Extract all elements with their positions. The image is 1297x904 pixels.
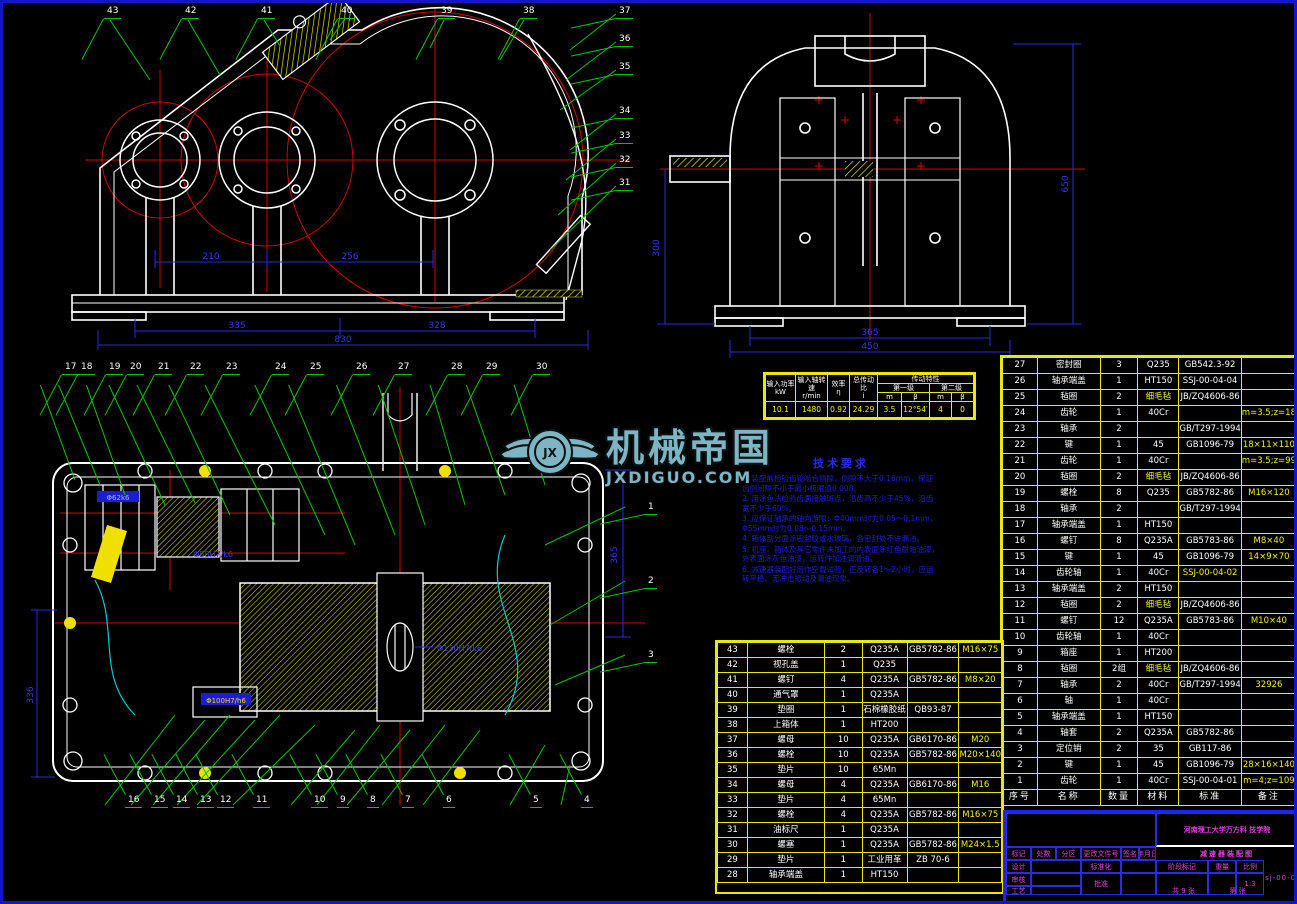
spec-value: 12°54′	[902, 402, 930, 418]
check-sign-cell	[1031, 873, 1081, 886]
bom-cell: 2	[1100, 502, 1138, 518]
bom-cell: 18	[1003, 502, 1038, 518]
bom-row: 18轴承2GB/T297-1994	[1003, 502, 1297, 518]
label-design: 设计	[1006, 860, 1031, 873]
bom-cell	[959, 763, 1002, 778]
transmission-spec-table: 输入功率 kW 输入轴转速 r/min 效率 η 总传动比 i 传动特性 第一级…	[763, 372, 976, 420]
label-date: 年月日	[1139, 847, 1156, 860]
bom-row: 10齿轮轴140Cr	[1003, 630, 1297, 646]
bom-cell: 垫片	[747, 793, 824, 808]
svg-text:335: 335	[228, 321, 245, 331]
bom-cell: 1	[1100, 646, 1138, 662]
bom-row: 42视孔盖1Q235	[718, 658, 1002, 673]
technical-requirements-list: 1. 装配前检验齿轮啮合侧隙，侧隙不大于0.16mm，保证齿侧间隙不小于最小极限…	[742, 474, 940, 584]
bom-cell	[1241, 358, 1296, 374]
spec-header: 总传动比 i	[850, 375, 878, 402]
bom-cell: 轴承	[1037, 422, 1100, 438]
side-view: 365 450 300 650	[645, 8, 1095, 358]
part-balloon-8: 8	[367, 795, 379, 808]
bom-cell: 轴承端盖	[1037, 374, 1100, 390]
bom-cell: 1	[825, 718, 863, 733]
part-balloon-14: 14	[173, 795, 190, 808]
part-balloon-26: 26	[353, 362, 370, 375]
bom-cell	[907, 793, 959, 808]
bom-row: 11螺钉12Q235AGB5783-86M10×40	[1003, 614, 1297, 630]
part-balloon-label: 33	[616, 131, 633, 144]
bom-cell	[959, 718, 1002, 733]
part-balloon-6: 6	[443, 795, 455, 808]
bom-cell: 16	[1003, 534, 1038, 550]
bom-cell: 轴	[1037, 694, 1100, 710]
bom-cell: 4	[1003, 726, 1038, 742]
bom-cell	[1179, 694, 1241, 710]
part-balloon-24: 24	[272, 362, 289, 375]
bom-cell: JB/ZQ4606-86	[1179, 470, 1241, 486]
spec-subcol: m	[878, 393, 902, 402]
part-balloon-label: 35	[616, 62, 633, 75]
part-balloon-label: 2	[645, 576, 657, 589]
part-balloon-27: 27	[395, 362, 412, 375]
bom-table-right: 27密封圈3Q235GB542.3-9226轴承端盖1HT150SSJ-00-0…	[1000, 355, 1297, 819]
bom-cell: 9	[1003, 646, 1038, 662]
bom-cell: 螺钉	[1037, 534, 1100, 550]
svg-text:365: 365	[610, 546, 620, 563]
spec-header: 效率 η	[828, 375, 850, 402]
bom-cell: 28×16×140	[1241, 758, 1296, 774]
bom-cell: 2	[1100, 390, 1138, 406]
bom-cell	[907, 658, 959, 673]
bom-cell: 43	[718, 643, 748, 658]
bom-cell: GB5782-86	[907, 838, 959, 853]
spec-group-header: 传动特性	[878, 375, 974, 384]
bom-cell: 40Cr	[1138, 406, 1179, 422]
bom-cell: 39	[718, 703, 748, 718]
label-approve: 批准	[1081, 873, 1121, 895]
part-balloon-label: 18	[78, 362, 95, 375]
bom-cell: Q235	[862, 658, 907, 673]
bom-cell: 1	[825, 853, 863, 868]
bom-cell: JB/ZQ4606-86	[1179, 662, 1241, 678]
bom-cell	[1179, 406, 1241, 422]
bom-row: 13轴承端盖2HT150	[1003, 582, 1297, 598]
bom-cell: 32926	[1241, 678, 1296, 694]
part-balloon-label: 23	[223, 362, 240, 375]
part-balloon-13: 13	[197, 795, 214, 808]
part-balloon-label: 28	[448, 362, 465, 375]
bom-cell: GB6170-86	[907, 733, 959, 748]
svg-text:Φ58H7/k6: Φ58H7/k6	[193, 550, 233, 559]
bom-cell: GB5782-86	[907, 643, 959, 658]
approve-sign-cell	[1121, 873, 1156, 895]
bom-row: 19螺栓8Q235GB5782-86M16×120	[1003, 486, 1297, 502]
gasket-highlight	[516, 290, 582, 297]
bom-cell: 细毛毡	[1138, 390, 1179, 406]
bom-cell: JB/ZQ4606-86	[1179, 598, 1241, 614]
process-sign-cell	[1031, 886, 1081, 895]
bom-cell: 上箱体	[747, 718, 824, 733]
bom-header-cell: 备注	[1241, 790, 1296, 806]
bom-row: 17轴承端盖1HT150	[1003, 518, 1297, 534]
bom-cell: 螺母	[747, 733, 824, 748]
bom-cell: HT150	[1138, 374, 1179, 390]
bom-cell	[1179, 454, 1241, 470]
part-balloon-label: 40	[338, 6, 355, 19]
bom-cell	[907, 763, 959, 778]
bom-cell: ZB 70-6	[907, 853, 959, 868]
label-standard: 标准化	[1081, 860, 1121, 873]
bom-cell: 轴承端盖	[1037, 582, 1100, 598]
bom-cell	[907, 823, 959, 838]
bom-cell: Q235A	[862, 643, 907, 658]
bom-cell: Q235A	[862, 673, 907, 688]
bom-cell: M16×75	[959, 643, 1002, 658]
bom-cell: 1	[825, 823, 863, 838]
technical-note: 6. 减速器装配好后作空载试验，正反转各1～2小时，应运转平稳、无冲击振动及漏油…	[742, 565, 940, 584]
bom-row: 4轴套2Q235AGB5782-86	[1003, 726, 1297, 742]
bom-row: 38上箱体1HT200	[718, 718, 1002, 733]
bom-cell: 1	[1003, 774, 1038, 790]
drawing-title: 减速器装配图	[1156, 847, 1297, 860]
bom-cell: GB5782-86	[907, 673, 959, 688]
bom-cell: GB5783-86	[1179, 534, 1241, 550]
part-balloon-label: 8	[367, 795, 379, 808]
label-ratio: 比例	[1236, 860, 1264, 873]
part-balloon-label: 37	[616, 6, 633, 19]
bom-cell: 轴承端盖	[1037, 518, 1100, 534]
part-balloon-21: 21	[155, 362, 172, 375]
bom-cell	[959, 688, 1002, 703]
bom-cell: GB5783-86	[1179, 614, 1241, 630]
label-check: 审核	[1006, 873, 1031, 886]
bom-cell: GB/T297-1994	[1179, 678, 1241, 694]
bom-row: 39垫圈1石棉橡胶纸QB93-87	[718, 703, 1002, 718]
part-balloon-label: 11	[253, 795, 270, 808]
bom-cell: 35	[718, 763, 748, 778]
label-count: 处数	[1031, 847, 1056, 860]
technical-note: 5. 机座、箱体及其它零件未加工的内表面涂红色耐油油漆，外表面涂灰色油漆，运转件…	[742, 545, 940, 564]
svg-text:JX: JX	[542, 446, 557, 460]
bom-cell: 1	[1100, 630, 1138, 646]
bom-cell: m=3.5;z=18	[1241, 406, 1296, 422]
bom-cell: 3	[1100, 358, 1138, 374]
label-mark: 标记	[1006, 847, 1031, 860]
bom-cell: 1	[1100, 774, 1138, 790]
bom-cell	[959, 853, 1002, 868]
bom-cell: GB1096-79	[1179, 758, 1241, 774]
spec-stage2: 第二级	[930, 384, 974, 393]
bom-header-cell: 名称	[1037, 790, 1100, 806]
part-balloon-label: 42	[182, 6, 199, 19]
bom-cell: 34	[718, 778, 748, 793]
bom-cell: 4	[825, 673, 863, 688]
label-doc: 更改文件号	[1081, 847, 1121, 860]
spec-value: 3.5	[878, 402, 902, 418]
bom-cell: SSJ-00-04-04	[1179, 374, 1241, 390]
bom-row: 36螺栓10Q235AGB5782-86M20×140	[718, 748, 1002, 763]
bom-row: 6轴140Cr	[1003, 694, 1297, 710]
part-balloon-42: 42	[182, 6, 199, 19]
bom-cell: 螺栓	[747, 748, 824, 763]
bom-cell: Q235A	[1138, 726, 1179, 742]
bom-row: 21齿轮140Crm=3.5;z=99	[1003, 454, 1297, 470]
spec-value: 0.92	[828, 402, 850, 418]
bom-cell: 26	[1003, 374, 1038, 390]
part-balloon-label: 25	[307, 362, 324, 375]
bom-cell: M16	[959, 778, 1002, 793]
bom-cell: 2	[1100, 678, 1138, 694]
bom-cell: 4	[825, 793, 863, 808]
bom-cell: 15	[1003, 550, 1038, 566]
bom-cell: 螺钉	[1037, 614, 1100, 630]
bom-cell: 2	[1100, 598, 1138, 614]
bom-cell: 3	[1003, 742, 1038, 758]
bom-cell: 1	[1100, 694, 1138, 710]
bom-cell	[1241, 598, 1296, 614]
bom-cell: 36	[718, 748, 748, 763]
dimension-lines	[657, 44, 1081, 358]
bom-cell: 垫片	[747, 853, 824, 868]
bom-cell: 14×9×70	[1241, 550, 1296, 566]
bom-cell: 1	[1100, 710, 1138, 726]
bom-cell: GB5782-86	[907, 748, 959, 763]
bom-cell: 1	[1100, 758, 1138, 774]
part-balloon-43: 43	[104, 6, 121, 19]
bom-cell: 8	[1100, 486, 1138, 502]
part-balloon-label: 29	[483, 362, 500, 375]
bom-cell: 2	[1100, 742, 1138, 758]
bom-cell: M16×75	[959, 808, 1002, 823]
bom-cell: GB/T297-1994	[1179, 502, 1241, 518]
part-balloon-16: 16	[125, 795, 142, 808]
svg-text:Φ130H7/k6: Φ130H7/k6	[437, 644, 482, 653]
label-process: 工艺	[1006, 886, 1031, 895]
part-balloon-31: 31	[616, 178, 633, 191]
bom-cell: 轴承	[1037, 678, 1100, 694]
bom-cell: 45	[1138, 438, 1179, 454]
bom-cell	[1241, 470, 1296, 486]
bom-cell	[1179, 710, 1241, 726]
part-balloon-label: 12	[217, 795, 234, 808]
bom-cell: 1	[825, 838, 863, 853]
bom-cell: 1	[1100, 454, 1138, 470]
bom-cell: GB5782-86	[1179, 486, 1241, 502]
bom-cell: 键	[1037, 758, 1100, 774]
bom-cell: 1	[825, 703, 863, 718]
bom-cell	[1241, 646, 1296, 662]
bom-cell: 28	[718, 868, 748, 883]
bom-row: 3定位销235GB117-86	[1003, 742, 1297, 758]
bom-cell	[1138, 422, 1179, 438]
bom-cell	[1138, 502, 1179, 518]
bom-cell: 齿轮轴	[1037, 566, 1100, 582]
bom-cell: M8×20	[959, 673, 1002, 688]
bom-cell: 40	[718, 688, 748, 703]
part-balloon-34: 34	[616, 106, 633, 119]
bom-cell: 键	[1037, 550, 1100, 566]
bom-cell: GB1096-79	[1179, 550, 1241, 566]
bom-row: 1齿轮140CrSSJ-00-04-01m=4;z=109	[1003, 774, 1297, 790]
bom-cell: HT150	[1138, 518, 1179, 534]
svg-text:210: 210	[202, 252, 219, 262]
bom-cell: HT150	[1138, 710, 1179, 726]
technical-note: 2. 用涂色法检验齿面接触斑点，沿齿高不少于45%，沿齿宽不少于60%。	[742, 494, 940, 513]
technical-note: 3. 应保证轴承的轴向游隙：Φ40mm时为0.05～0.1mm，Φ55mm时为0…	[742, 514, 940, 533]
bom-cell: HT150	[862, 868, 907, 883]
bom-cell	[1179, 646, 1241, 662]
title-block: 标记 处数 分区 更改文件号 签名 年月日 设计 标准化 审核 工艺 批准 阶段…	[1003, 810, 1297, 904]
part-balloon-label: 39	[438, 6, 455, 19]
bom-cell: 40Cr	[1138, 774, 1179, 790]
part-balloon-5: 5	[530, 795, 542, 808]
bom-row: 22键145GB1096-7918×11×110	[1003, 438, 1297, 454]
part-balloon-label: 26	[353, 362, 370, 375]
bom-cell: 螺栓	[747, 643, 824, 658]
watermark-en-text: JXDIGUO.COM	[606, 468, 774, 487]
svg-text:300: 300	[652, 239, 662, 256]
label-sheet: 第 张	[1211, 886, 1264, 895]
spec-header: 输入功率 kW	[766, 375, 796, 402]
bom-cell	[1179, 518, 1241, 534]
bom-cell: 4	[825, 778, 863, 793]
bom-cell: 2	[1100, 582, 1138, 598]
winged-gear-logo-icon: JX	[498, 416, 602, 488]
bom-cell: M24×1.5	[959, 838, 1002, 853]
part-balloon-label: 6	[443, 795, 455, 808]
bom-cell: HT200	[862, 718, 907, 733]
part-balloon-12: 12	[217, 795, 234, 808]
bom-cell: 视孔盖	[747, 658, 824, 673]
bom-cell: 18×11×110	[1241, 438, 1296, 454]
bom-cell	[1241, 630, 1296, 646]
bom-cell: 1	[1100, 550, 1138, 566]
bom-cell: Q235A	[862, 808, 907, 823]
bom-cell: M8×40	[1241, 534, 1296, 550]
bom-row: 23轴承2GB/T297-1994	[1003, 422, 1297, 438]
part-balloon-label: 31	[616, 178, 633, 191]
bom-cell: Q235	[1138, 486, 1179, 502]
part-balloon-label: 20	[127, 362, 144, 375]
bom-cell: 密封圈	[1037, 358, 1100, 374]
bom-cell	[1241, 710, 1296, 726]
bom-cell: M20	[959, 733, 1002, 748]
bom-cell: 轴套	[1037, 726, 1100, 742]
bom-cell: 齿轮	[1037, 774, 1100, 790]
bom-cell: M16×120	[1241, 486, 1296, 502]
bom-cell: 螺塞	[747, 838, 824, 853]
bom-row: 40通气罩1Q235A	[718, 688, 1002, 703]
drawing-number-box: ssj-00-04	[1264, 860, 1297, 895]
bom-cell: 21	[1003, 454, 1038, 470]
bom-cell: 1	[1100, 406, 1138, 422]
bom-cell: 螺母	[747, 778, 824, 793]
bom-cell: GB117-86	[1179, 742, 1241, 758]
bom-cell	[959, 823, 1002, 838]
bom-cell	[907, 718, 959, 733]
part-balloon-32: 32	[616, 155, 633, 168]
bom-cell: 石棉橡胶纸	[862, 703, 907, 718]
part-balloon-33: 33	[616, 131, 633, 144]
bom-cell: 齿轮轴	[1037, 630, 1100, 646]
bom-cell: GB5782-86	[1179, 726, 1241, 742]
bom-cell	[1179, 582, 1241, 598]
bom-cell: JB/ZQ4606-86	[1179, 390, 1241, 406]
part-balloon-label: 13	[197, 795, 214, 808]
bom-header-cell: 标准	[1179, 790, 1241, 806]
bom-cell: 1	[1100, 518, 1138, 534]
bom-row: 43螺栓2Q235AGB5782-86M16×75	[718, 643, 1002, 658]
bom-cell: 1	[825, 868, 863, 883]
bom-cell: 7	[1003, 678, 1038, 694]
bom-cell	[1241, 726, 1296, 742]
bom-cell: Q235A	[862, 688, 907, 703]
bom-cell: 垫片	[747, 763, 824, 778]
bom-cell: 6	[1003, 694, 1038, 710]
bom-cell: 29	[718, 853, 748, 868]
bom-row: 2键145GB1096-7928×16×140	[1003, 758, 1297, 774]
part-balloon-label: 30	[533, 362, 550, 375]
bom-row: 33垫片465Mn	[718, 793, 1002, 808]
spec-subcol: β	[902, 393, 930, 402]
part-balloon-label: 7	[402, 795, 414, 808]
bom-cell: 10	[825, 763, 863, 778]
bom-cell: 2	[1100, 422, 1138, 438]
part-balloon-label: 22	[187, 362, 204, 375]
bom-cell: 17	[1003, 518, 1038, 534]
svg-text:Φ62k6: Φ62k6	[107, 494, 130, 502]
bom-cell: 2	[1100, 470, 1138, 486]
bom-cell: 12	[1100, 614, 1138, 630]
bom-row: 16螺钉8Q235AGB5783-86M8×40	[1003, 534, 1297, 550]
bom-cell: Q235A	[862, 748, 907, 763]
svg-text:365: 365	[861, 328, 878, 338]
bom-cell: 33	[718, 793, 748, 808]
bom-cell: 毡圈	[1037, 662, 1100, 678]
label-stage: 阶段标记	[1156, 860, 1208, 873]
bom-cell: 13	[1003, 582, 1038, 598]
bom-header-cell: 数量	[1100, 790, 1138, 806]
part-balloon-10: 10	[311, 795, 328, 808]
label-sign: 签名	[1121, 847, 1139, 860]
bom-cell: 40Cr	[1138, 454, 1179, 470]
bom-cell: 油标尺	[747, 823, 824, 838]
part-balloon-11: 11	[253, 795, 270, 808]
part-balloon-label: 1	[645, 502, 657, 515]
school-name: 河南理工大学万方科 技学院	[1156, 813, 1297, 847]
bom-cell: GB6170-86	[907, 778, 959, 793]
bom-cell: 2	[825, 643, 863, 658]
bom-cell	[1241, 742, 1296, 758]
bom-cell: 箱座	[1037, 646, 1100, 662]
bom-row: 35垫片1065Mn	[718, 763, 1002, 778]
bom-cell: 螺栓	[747, 808, 824, 823]
bom-cell: 1	[825, 658, 863, 673]
bom-cell: 40Cr	[1138, 630, 1179, 646]
label-sheets: 共 9 张	[1156, 886, 1211, 895]
bom-cell: 35	[1138, 742, 1179, 758]
spec-subcol: m	[930, 393, 952, 402]
part-balloon-label: 21	[155, 362, 172, 375]
bom-cell: m=4;z=109	[1241, 774, 1296, 790]
part-balloon-1: 1	[645, 502, 657, 515]
svg-text:830: 830	[334, 335, 351, 345]
svg-text:256: 256	[341, 252, 358, 262]
bom-cell: 齿轮	[1037, 454, 1100, 470]
bom-cell: 32	[718, 808, 748, 823]
gear-train	[85, 485, 550, 721]
bom-row: 15键145GB1096-7914×9×70	[1003, 550, 1297, 566]
bom-row: 31油标尺1Q235A	[718, 823, 1002, 838]
part-balloon-4: 4	[581, 795, 593, 808]
